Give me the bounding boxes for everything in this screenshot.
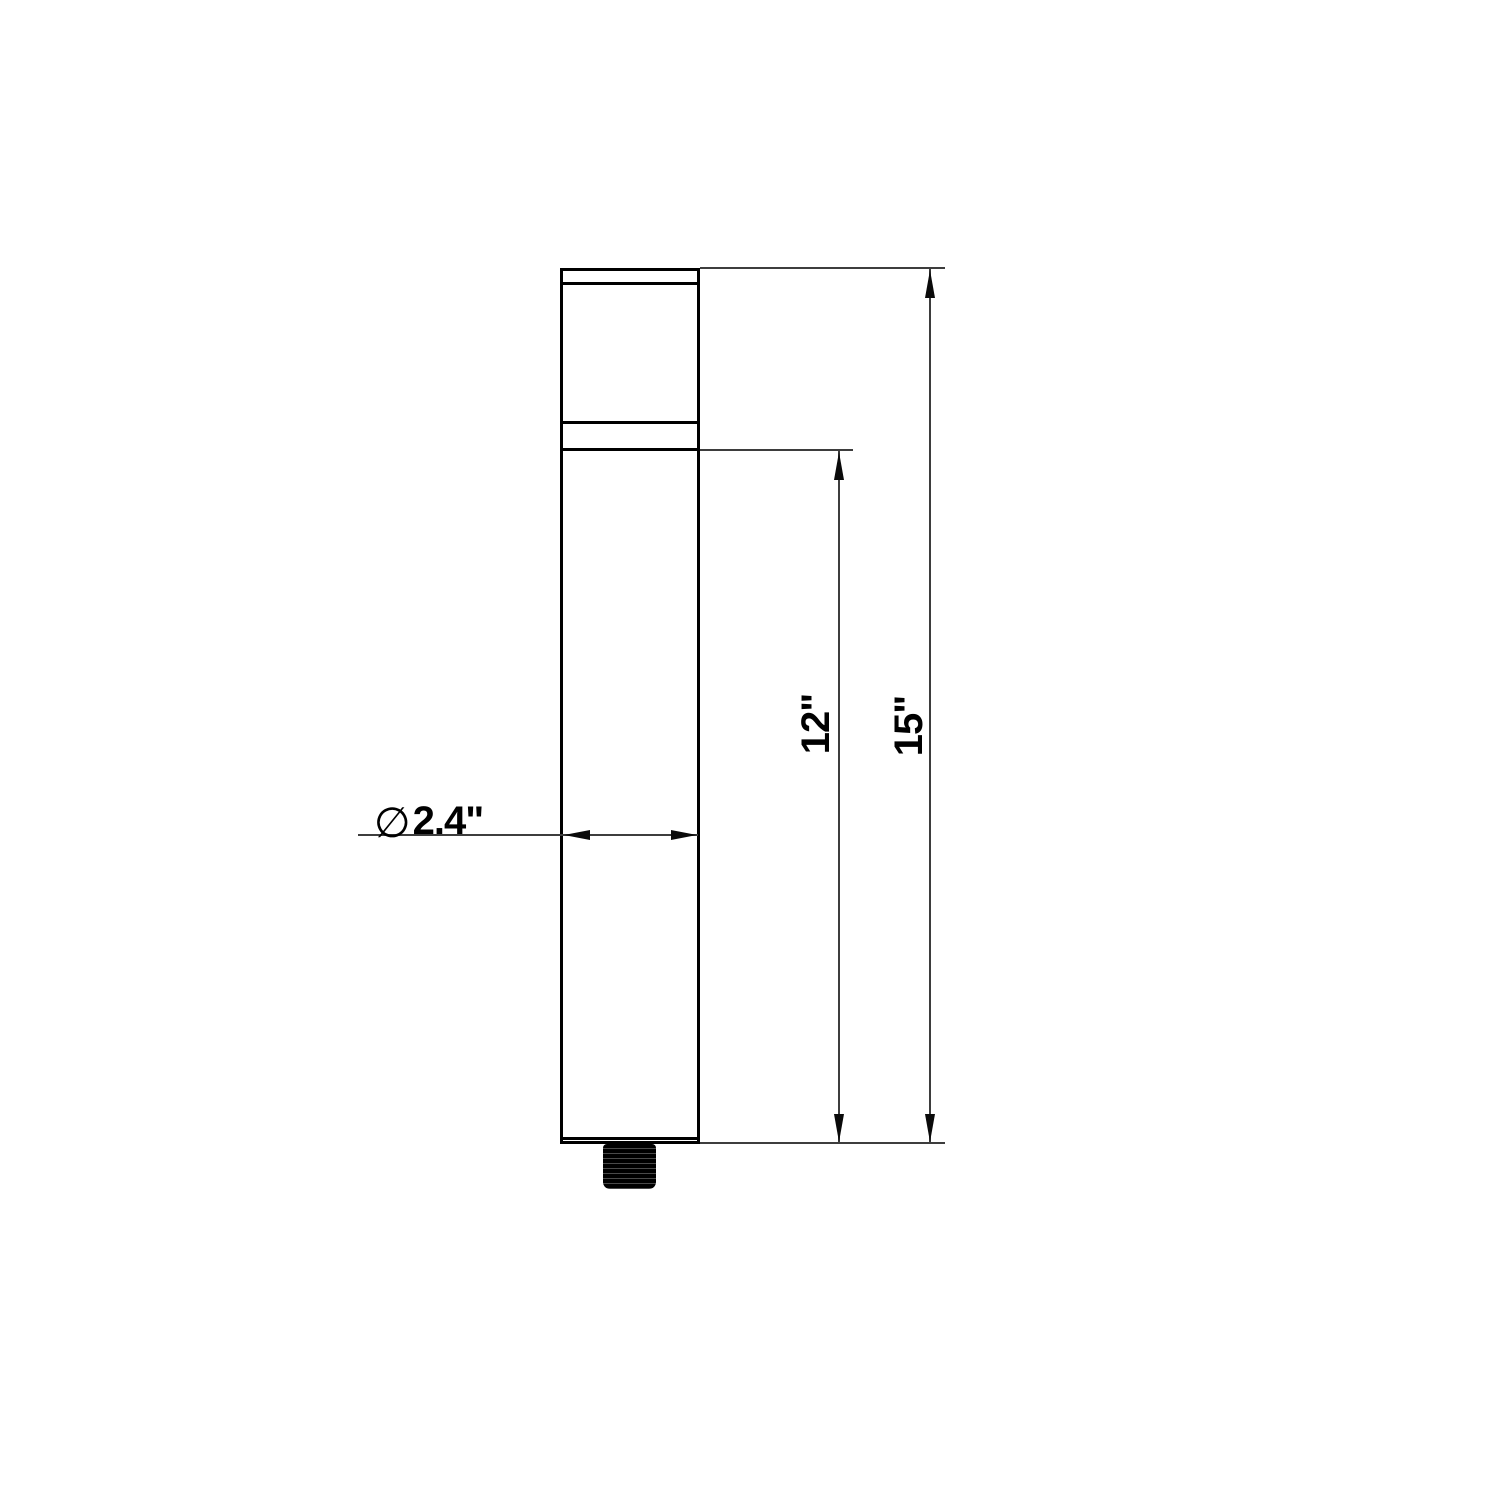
arrowhead-up-overall — [925, 270, 935, 298]
diameter-value-text: 2.4" — [413, 801, 484, 841]
threaded-nipple — [603, 1144, 656, 1189]
head-bottom-line — [560, 421, 700, 424]
overall-height-text: 15" — [889, 696, 929, 756]
drawing-canvas: 15" 12" ∅ 2.4" — [0, 0, 1498, 1498]
extension-line-bottom — [700, 1142, 945, 1144]
dim-line-body-height — [838, 450, 840, 1144]
flange-top-line — [560, 1137, 700, 1140]
dim-label-diameter: ∅ 2.4" — [374, 799, 483, 841]
arrowhead-down-body — [834, 1114, 844, 1142]
extension-line-top — [700, 267, 945, 269]
collar-bottom-line — [560, 448, 700, 451]
arrowhead-left-diameter — [564, 830, 590, 840]
arrowhead-down-overall — [925, 1114, 935, 1142]
cap-bottom-line — [560, 282, 700, 285]
dim-label-overall-height: 15" — [888, 691, 930, 761]
diameter-symbol-icon: ∅ — [374, 802, 410, 844]
body-height-text: 12" — [796, 694, 836, 754]
arrowhead-up-body — [834, 452, 844, 480]
cylinder-outline — [560, 268, 700, 1144]
arrowhead-right-diameter — [671, 830, 697, 840]
extension-line-mid — [700, 449, 853, 451]
dim-label-body-height: 12" — [795, 689, 837, 759]
